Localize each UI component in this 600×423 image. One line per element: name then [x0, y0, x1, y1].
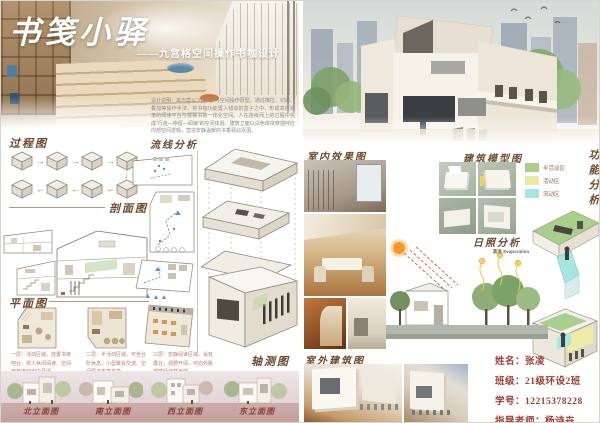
ceiling	[304, 214, 386, 240]
table	[322, 258, 362, 270]
right-page: 室内效果图 建筑模型图	[303, 1, 599, 423]
process-cube-icon	[11, 151, 33, 171]
process-arrow-icon: →	[71, 157, 80, 166]
stair-railing	[308, 170, 338, 210]
hero-interior-photo: 书笺小驿 ——九宫格空间操作书咖设计 设计说明：本方案以“九宫格”为空间操作原型…	[1, 1, 299, 133]
left-page: 书笺小驿 ——九宫格空间操作书咖设计 设计说明：本方案以“九宫格”为空间操作原型…	[1, 1, 299, 423]
process-cube-icon	[81, 179, 103, 199]
section-diagram-label: 剖面图	[109, 200, 148, 216]
east-elevation-label: 东立面图	[239, 406, 275, 417]
window	[356, 164, 382, 202]
legend-swatch-semi-active	[525, 163, 539, 172]
process-arrow-icon: →	[106, 157, 115, 166]
student-info: 姓名：张凌 班级：21级环设2班 学号：12215378228 指导老师：杨诗卉	[495, 353, 599, 423]
north-elevation-drawing	[7, 375, 71, 405]
exterior-photo-1	[304, 364, 402, 422]
sunlight-diagram	[386, 239, 548, 351]
section-drawing-small	[3, 229, 53, 254]
building-volume	[362, 370, 396, 404]
model-block	[444, 209, 470, 228]
circulation-analysis-label: 流线分析	[150, 136, 198, 151]
stair-curve	[320, 306, 342, 346]
window	[416, 386, 432, 398]
floor-plan-3-roof-terrace	[143, 303, 195, 349]
doorway	[354, 318, 368, 336]
evaporation-label: 蒸发 Evaporation	[493, 249, 537, 255]
process-arrow-icon: ←	[71, 185, 80, 194]
process-cube-icon	[11, 179, 33, 199]
chair	[314, 266, 326, 282]
south-elevation-label: 南立面图	[95, 406, 131, 417]
process-cube-icon	[46, 179, 68, 199]
floor-plan-1	[17, 307, 57, 349]
info-advisor: 指导老师：杨诗卉	[495, 413, 599, 423]
yellow-tag	[480, 176, 484, 186]
poster: 书笺小驿 ——九宫格空间操作书咖设计 设计说明：本方案以“九宫格”为空间操作原型…	[0, 0, 600, 423]
window	[320, 378, 340, 394]
process-cube-icon	[46, 151, 68, 171]
elevation-strip: 北立面图 南立面图 西立面图 东立面图	[1, 371, 299, 422]
circulation-plan-2	[148, 191, 196, 254]
model-photo-4	[478, 198, 516, 234]
process-arrow-icon: ←	[106, 185, 115, 194]
legend-label-active: 活动区	[543, 177, 560, 185]
interior-photo-4	[348, 298, 386, 349]
info-name: 姓名：张凌	[495, 353, 599, 367]
deck-chairs	[412, 410, 452, 415]
west-elevation-label: 西立面图	[167, 406, 203, 417]
process-arrow-icon: ←	[36, 185, 45, 194]
design-statement: 设计说明：本方案以“九宫格”为空间操作原型，通过推拉、切削、叠加等操作手法，将书…	[151, 98, 295, 131]
legend-label-semi-active: 半活动区	[543, 164, 565, 172]
model-interior	[488, 212, 504, 222]
section-drawing-small	[15, 259, 57, 296]
book-spine	[7, 65, 17, 77]
process-diagram: → → → ↓ ← ← ←	[11, 149, 151, 201]
model-photo-1	[439, 162, 476, 196]
exterior-photo-2	[404, 364, 468, 422]
poster-subtitle: ——九宫格空间操作书咖设计	[137, 45, 280, 60]
north-elevation-label: 北立面图	[23, 406, 59, 417]
info-student-id: 学号：12215378228	[495, 393, 599, 407]
legend-swatch-active	[525, 176, 539, 185]
deck-chairs	[360, 404, 400, 410]
circulation-plan-3	[134, 259, 195, 299]
column-divider	[197, 151, 198, 353]
east-elevation-drawing	[223, 375, 287, 405]
interior-photo-1	[304, 160, 386, 212]
exploded-axonometric	[201, 147, 301, 353]
west-elevation-drawing	[151, 375, 215, 405]
model-photo-2	[478, 162, 516, 196]
model-photo-3	[439, 198, 476, 234]
circulation-plan-1	[131, 154, 194, 187]
model-block	[485, 170, 511, 188]
model-block	[448, 166, 461, 174]
blue-cushion	[167, 63, 194, 73]
process-arrow-icon: →	[36, 157, 45, 166]
interior-photo-3	[304, 298, 346, 349]
info-class: 班级：21级环设2班	[495, 373, 599, 387]
south-elevation-drawing	[79, 375, 143, 405]
axonometric-label: 轴测图	[251, 353, 290, 369]
interior-photo-2	[304, 214, 386, 296]
poster-title: 书笺小驿	[9, 7, 149, 52]
hero-fade	[303, 117, 599, 149]
section-rule	[9, 207, 105, 208]
chair	[362, 266, 374, 282]
hero-exterior-render	[303, 1, 599, 149]
floor-plan-2	[87, 307, 127, 349]
process-cube-icon	[81, 151, 103, 171]
plan-rule	[49, 301, 149, 302]
model-block	[444, 172, 468, 188]
